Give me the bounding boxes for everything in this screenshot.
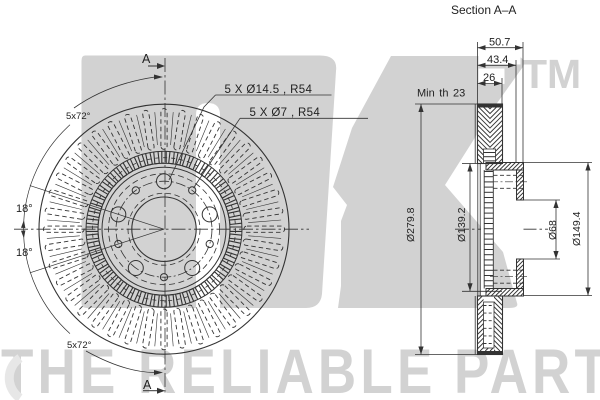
svg-text:THE: THE <box>1 337 120 400</box>
svg-text:Ø279.8: Ø279.8 <box>405 207 417 242</box>
svg-text:5 X Ø14.5 , R54: 5 X Ø14.5 , R54 <box>225 84 313 96</box>
svg-text:A: A <box>143 378 152 392</box>
svg-text:43.4: 43.4 <box>487 54 508 66</box>
svg-text:RELIABLE: RELIABLE <box>138 337 436 400</box>
svg-text:Ø68: Ø68 <box>547 220 559 240</box>
svg-text:PART: PART <box>454 337 600 400</box>
svg-text:5x72°: 5x72° <box>66 111 91 122</box>
svg-text:18°: 18° <box>16 247 33 259</box>
svg-text:A: A <box>142 52 151 66</box>
svg-text:Section A–A: Section A–A <box>451 3 516 17</box>
svg-text:Ø139.2: Ø139.2 <box>456 207 468 242</box>
svg-text:50.7: 50.7 <box>489 37 510 49</box>
svg-text:Ø149.4: Ø149.4 <box>571 211 583 246</box>
svg-text:18°: 18° <box>16 203 33 215</box>
svg-text:Min th 23: Min th 23 <box>417 88 465 100</box>
svg-text:5x72°: 5x72° <box>67 340 92 351</box>
svg-text:5 X Ø7 , R54: 5 X Ø7 , R54 <box>250 107 321 119</box>
svg-text:TM: TM <box>522 51 581 97</box>
